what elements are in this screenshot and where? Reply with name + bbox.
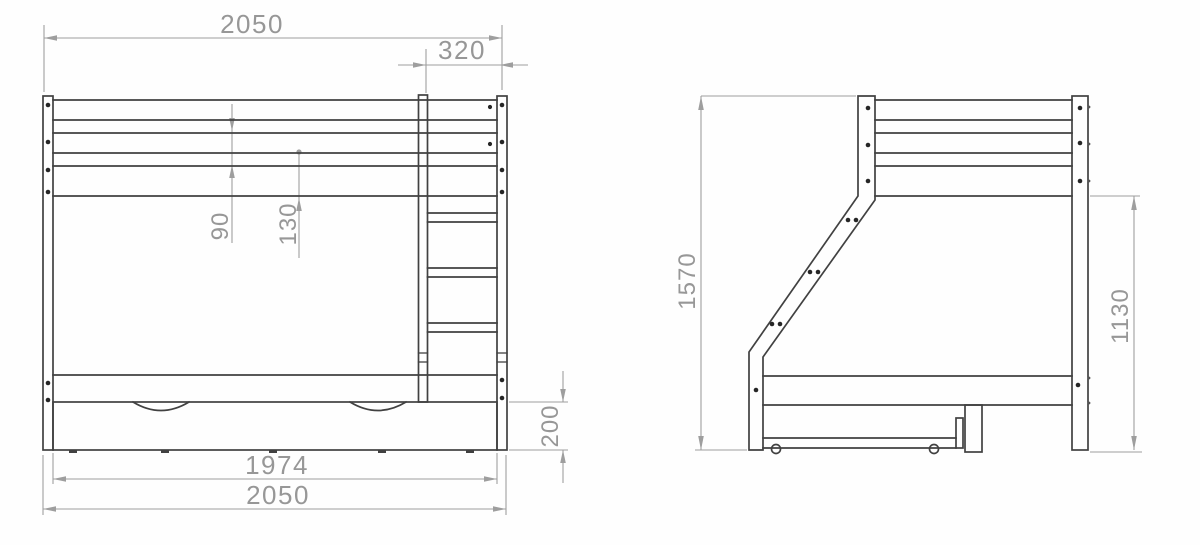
arrowhead-down xyxy=(698,436,704,450)
dim-overall-height: 1570 xyxy=(674,96,856,450)
arrowhead-up xyxy=(229,165,235,178)
rear-post xyxy=(1072,96,1088,450)
dim-label-drawer-width: 1974 xyxy=(245,450,309,480)
dim-label-rail-gap-b: 130 xyxy=(275,202,302,245)
left-post xyxy=(43,96,53,450)
dim-overall-width-top: 2050 xyxy=(44,9,502,92)
dim-label-overall-width-bottom: 2050 xyxy=(246,480,310,510)
drawer-front xyxy=(53,402,497,450)
arrowhead-left xyxy=(44,35,57,41)
upper-rails xyxy=(53,100,497,196)
dim-label-overall-width-top: 2050 xyxy=(220,9,284,39)
drawer-glide xyxy=(161,450,169,453)
arrowhead-right xyxy=(484,476,497,482)
dim-drawer-height: 200 xyxy=(509,371,568,483)
drawer-side xyxy=(763,418,963,454)
dim-label-overall-height: 1570 xyxy=(674,252,701,309)
ladder xyxy=(419,95,508,402)
middle-leg xyxy=(965,405,982,452)
caster-wheel xyxy=(772,445,781,454)
dim-label-ladder-width: 320 xyxy=(438,35,486,65)
arrowhead-up xyxy=(698,96,704,110)
arrowhead-up xyxy=(1131,196,1137,210)
arrowhead-left xyxy=(53,476,66,482)
dim-drawer-width: 1974 xyxy=(53,450,497,484)
ladder-stile xyxy=(419,95,428,402)
drawer-glide xyxy=(69,450,77,453)
lower-footboard xyxy=(763,376,1072,405)
drawer-handle-cutout xyxy=(350,402,406,411)
dim-label-drawer-height: 200 xyxy=(537,404,564,447)
fastener-dots-side xyxy=(754,106,1091,405)
dim-underside-height: 1130 xyxy=(1090,196,1142,452)
arrowhead-right xyxy=(493,506,506,512)
technical-drawing-canvas: 2050 320 90 130 xyxy=(0,0,1200,545)
drawer-glide xyxy=(466,450,474,453)
dim-label-underside-height: 1130 xyxy=(1107,288,1134,344)
drawer xyxy=(53,402,497,453)
technical-drawing-page: 2050 320 90 130 xyxy=(0,0,1200,545)
side-view: 1570 1130 xyxy=(674,96,1142,454)
headboard-rails xyxy=(875,100,1072,196)
dim-ladder-width: 320 xyxy=(398,35,528,93)
fastener-dots-front xyxy=(46,103,505,403)
drawer-glide xyxy=(378,450,386,453)
drawer-glide xyxy=(269,450,277,453)
drawer-front-edge xyxy=(956,418,963,448)
arrowhead-down xyxy=(1131,436,1137,450)
caster-wheel xyxy=(930,445,939,454)
dim-label-rail-gap-a: 90 xyxy=(207,212,234,241)
drawer-handle-cutout xyxy=(133,402,189,411)
arrowhead-right xyxy=(489,35,502,41)
arrowhead-left xyxy=(43,506,56,512)
dim-rail-gap-a: 90 xyxy=(207,104,235,243)
arrowhead-right xyxy=(413,62,426,68)
arrowhead-down xyxy=(560,389,566,402)
arrowhead-up xyxy=(560,450,566,463)
front-view: 2050 320 90 130 xyxy=(43,9,568,515)
